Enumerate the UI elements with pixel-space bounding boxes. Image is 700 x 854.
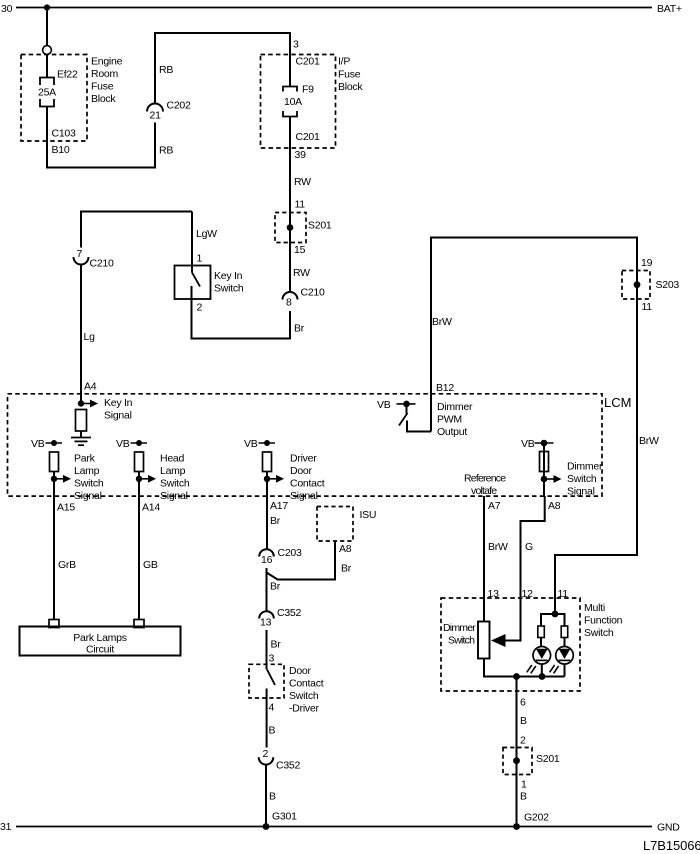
svg-text:Block: Block bbox=[91, 93, 116, 105]
svg-text:C210: C210 bbox=[301, 287, 326, 299]
svg-text:voltafe: voltafe bbox=[471, 485, 497, 497]
svg-text:A17: A17 bbox=[270, 500, 288, 512]
svg-text:S201: S201 bbox=[536, 753, 560, 765]
svg-text:Output: Output bbox=[437, 426, 467, 438]
svg-text:-Driver: -Driver bbox=[289, 703, 319, 715]
svg-text:RB: RB bbox=[159, 64, 173, 76]
svg-text:Signal: Signal bbox=[567, 486, 595, 498]
svg-text:Br: Br bbox=[270, 515, 281, 527]
svg-text:ISU: ISU bbox=[360, 509, 377, 521]
svg-text:Engine: Engine bbox=[91, 56, 123, 68]
svg-text:G: G bbox=[525, 541, 533, 553]
svg-text:BrW: BrW bbox=[488, 541, 508, 553]
svg-text:RB: RB bbox=[159, 145, 173, 157]
svg-text:BrW: BrW bbox=[432, 316, 452, 328]
svg-text:GB: GB bbox=[143, 559, 158, 571]
svg-text:11: 11 bbox=[295, 199, 306, 211]
svg-text:C103: C103 bbox=[52, 128, 77, 140]
svg-text:Dimmer: Dimmer bbox=[567, 461, 603, 473]
svg-text:Dimmer: Dimmer bbox=[437, 401, 473, 413]
svg-text:C210: C210 bbox=[90, 258, 115, 270]
svg-text:2: 2 bbox=[197, 302, 203, 314]
svg-text:Circuit: Circuit bbox=[86, 644, 114, 656]
svg-text:Driver: Driver bbox=[290, 453, 317, 465]
svg-text:B: B bbox=[520, 715, 527, 727]
svg-text:Fuse: Fuse bbox=[338, 69, 361, 81]
svg-text:Br: Br bbox=[270, 581, 281, 593]
svg-text:C203: C203 bbox=[278, 547, 303, 559]
svg-text:PWM: PWM bbox=[437, 414, 462, 426]
svg-text:Room: Room bbox=[91, 68, 119, 80]
svg-text:Function: Function bbox=[584, 615, 623, 627]
svg-text:A14: A14 bbox=[142, 502, 160, 514]
svg-text:Signal: Signal bbox=[290, 490, 318, 502]
svg-text:Contact: Contact bbox=[290, 478, 325, 490]
svg-text:VB: VB bbox=[31, 438, 45, 450]
svg-text:Key In: Key In bbox=[214, 270, 243, 282]
svg-text:25A: 25A bbox=[38, 87, 56, 99]
svg-text:1: 1 bbox=[197, 253, 203, 265]
svg-text:16: 16 bbox=[261, 554, 273, 566]
svg-text:Switch: Switch bbox=[160, 478, 190, 490]
svg-text:B: B bbox=[269, 791, 276, 803]
svg-text:B10: B10 bbox=[52, 144, 70, 156]
svg-text:Key In: Key In bbox=[104, 397, 133, 409]
svg-text:GrB: GrB bbox=[58, 559, 76, 571]
svg-text:G301: G301 bbox=[272, 811, 297, 823]
svg-text:B12: B12 bbox=[436, 382, 454, 394]
svg-text:C352: C352 bbox=[277, 607, 302, 619]
svg-text:Dimmer: Dimmer bbox=[443, 622, 476, 634]
svg-text:Signal: Signal bbox=[74, 490, 102, 502]
svg-text:2: 2 bbox=[520, 735, 526, 747]
svg-text:Signal: Signal bbox=[104, 410, 132, 422]
svg-text:VB: VB bbox=[244, 438, 258, 450]
svg-text:BrW: BrW bbox=[639, 435, 659, 447]
svg-text:7: 7 bbox=[77, 248, 83, 260]
svg-text:LCM: LCM bbox=[604, 395, 631, 410]
svg-text:VB: VB bbox=[521, 438, 535, 450]
svg-text:S201: S201 bbox=[308, 220, 332, 232]
svg-text:Lamp: Lamp bbox=[160, 465, 186, 477]
svg-text:BAT+: BAT+ bbox=[657, 3, 682, 15]
svg-text:Switch: Switch bbox=[448, 635, 475, 647]
svg-text:Lg: Lg bbox=[84, 331, 96, 343]
svg-text:Br: Br bbox=[341, 563, 352, 575]
svg-text:19: 19 bbox=[641, 257, 653, 269]
svg-text:A8: A8 bbox=[339, 543, 352, 555]
svg-text:RW: RW bbox=[294, 176, 311, 188]
svg-text:Switch: Switch bbox=[584, 627, 614, 639]
svg-text:Multi: Multi bbox=[584, 602, 605, 614]
svg-text:Contact: Contact bbox=[289, 678, 324, 690]
svg-text:15: 15 bbox=[294, 244, 306, 256]
svg-text:Br: Br bbox=[294, 323, 305, 335]
svg-text:RW: RW bbox=[293, 267, 310, 279]
svg-text:Br: Br bbox=[271, 639, 282, 651]
svg-text:A15: A15 bbox=[57, 502, 75, 514]
svg-text:A8: A8 bbox=[548, 500, 561, 512]
svg-text:Door: Door bbox=[289, 665, 312, 677]
svg-text:21: 21 bbox=[150, 110, 162, 122]
svg-text:GND: GND bbox=[657, 822, 680, 834]
svg-text:VB: VB bbox=[116, 438, 130, 450]
svg-text:13: 13 bbox=[260, 617, 272, 629]
svg-text:Fuse: Fuse bbox=[91, 81, 114, 93]
svg-text:VB: VB bbox=[377, 399, 391, 411]
svg-text:B: B bbox=[269, 725, 276, 737]
svg-text:A7: A7 bbox=[488, 500, 501, 512]
svg-text:B: B bbox=[520, 791, 527, 803]
svg-text:F9: F9 bbox=[302, 84, 314, 96]
svg-text:C202: C202 bbox=[167, 100, 192, 112]
svg-text:Lamp: Lamp bbox=[74, 465, 100, 477]
svg-text:11: 11 bbox=[642, 301, 653, 313]
svg-text:L7B15066: L7B15066 bbox=[643, 838, 700, 853]
svg-text:Block: Block bbox=[338, 81, 363, 93]
svg-text:8: 8 bbox=[286, 297, 292, 309]
svg-text:10A: 10A bbox=[284, 96, 302, 108]
svg-text:4: 4 bbox=[269, 702, 275, 714]
svg-text:6: 6 bbox=[520, 697, 526, 709]
svg-text:Park: Park bbox=[74, 453, 96, 465]
svg-text:Switch: Switch bbox=[74, 478, 104, 490]
svg-text:31: 31 bbox=[0, 821, 12, 833]
svg-text:A4: A4 bbox=[84, 381, 97, 393]
svg-text:I/P: I/P bbox=[338, 56, 350, 68]
svg-text:Door: Door bbox=[290, 465, 313, 477]
svg-text:Switch: Switch bbox=[567, 473, 597, 485]
svg-text:Reference: Reference bbox=[464, 473, 506, 485]
svg-text:Switch: Switch bbox=[214, 283, 244, 295]
svg-text:Ef22: Ef22 bbox=[57, 69, 78, 81]
svg-text:3: 3 bbox=[293, 39, 299, 51]
svg-text:LgW: LgW bbox=[196, 228, 217, 240]
svg-text:G202: G202 bbox=[524, 812, 549, 824]
svg-text:2: 2 bbox=[263, 748, 269, 760]
svg-text:C201: C201 bbox=[296, 56, 321, 68]
svg-text:Park Lamps: Park Lamps bbox=[73, 632, 127, 644]
svg-text:30: 30 bbox=[1, 3, 13, 15]
svg-text:1: 1 bbox=[521, 779, 527, 791]
svg-text:C352: C352 bbox=[276, 760, 301, 772]
svg-text:Switch: Switch bbox=[289, 690, 319, 702]
svg-text:C201: C201 bbox=[296, 131, 321, 143]
svg-text:Signal: Signal bbox=[160, 490, 188, 502]
svg-text:39: 39 bbox=[295, 149, 307, 161]
svg-text:Head: Head bbox=[160, 453, 185, 465]
svg-text:S203: S203 bbox=[656, 279, 680, 291]
svg-text:3: 3 bbox=[269, 653, 275, 665]
